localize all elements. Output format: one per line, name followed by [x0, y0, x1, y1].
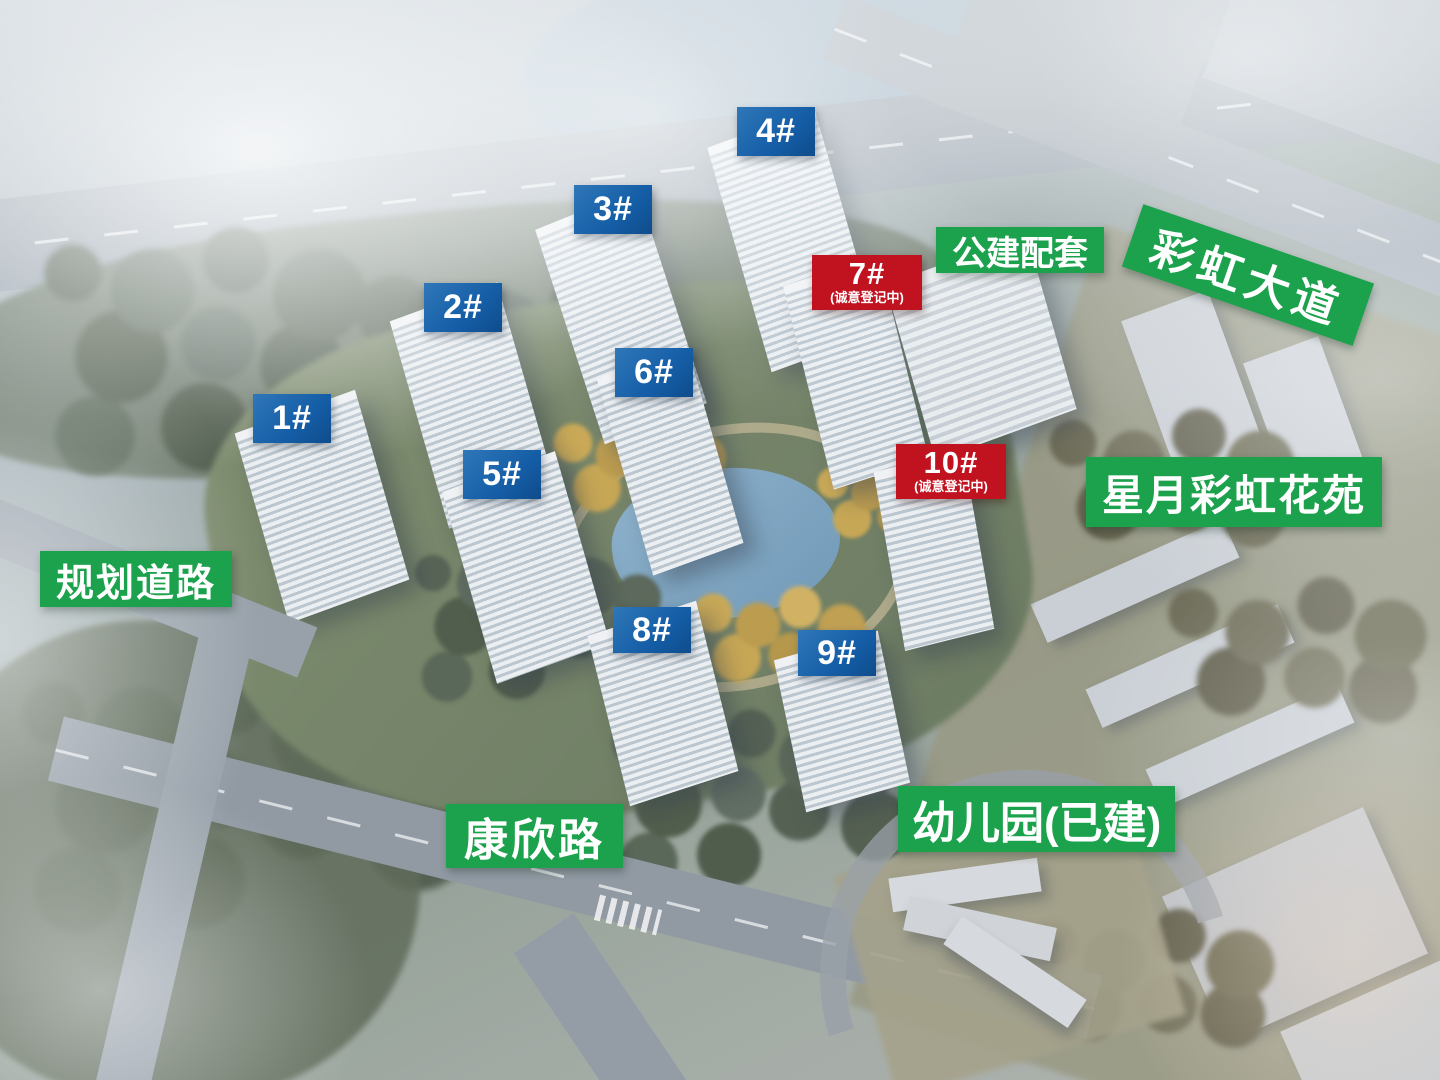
marker-status: (诚意登记中) — [914, 479, 988, 495]
building-marker-3: 3# — [574, 185, 652, 234]
marker-label: 1# — [272, 399, 312, 438]
label-text: 规划道路 — [56, 552, 216, 607]
label-text: 星月彩虹花苑 — [1102, 462, 1366, 523]
building-marker-6: 6# — [615, 348, 693, 397]
marker-label: 7# — [849, 258, 885, 290]
label-text: 幼儿园(已建) — [912, 787, 1161, 851]
marker-label: 9# — [817, 634, 857, 673]
label-text: 康欣路 — [464, 804, 605, 868]
label-kindergarten: 幼儿园(已建) — [898, 786, 1175, 852]
label-planned-road: 规划道路 — [40, 551, 232, 607]
marker-label: 3# — [593, 190, 633, 229]
building-marker-5: 5# — [463, 450, 541, 499]
marker-label: 6# — [634, 353, 674, 392]
building-marker-10: 10# (诚意登记中) — [896, 444, 1006, 499]
building-marker-7: 7# (诚意登记中) — [812, 255, 922, 310]
building-marker-8: 8# — [613, 607, 691, 653]
building-marker-2: 2# — [424, 283, 502, 332]
label-text: 公建配套 — [952, 226, 1088, 275]
marker-label: 4# — [756, 112, 796, 151]
marker-label: 5# — [482, 455, 522, 494]
marker-label: 10# — [924, 447, 979, 479]
tree-cluster-autumn — [554, 424, 593, 463]
label-kangxin-road: 康欣路 — [446, 804, 623, 868]
building-marker-1: 1# — [253, 394, 331, 443]
marker-label: 8# — [632, 611, 672, 650]
marker-status: (诚意登记中) — [830, 290, 904, 306]
tree-cluster — [44, 244, 101, 301]
tree-cluster — [415, 555, 451, 591]
label-public-facility: 公建配套 — [936, 227, 1104, 273]
building-marker-4: 4# — [737, 107, 815, 156]
aerial-site-plan: 1# 2# 3# 4# 5# 6# 8# 9# 7# (诚意登记中) 10# (… — [0, 0, 1440, 1080]
tree-cluster — [1168, 588, 1217, 637]
marker-label: 2# — [443, 288, 483, 327]
label-neighbor-estate: 星月彩虹花苑 — [1086, 457, 1382, 527]
building-marker-9: 9# — [798, 630, 876, 676]
